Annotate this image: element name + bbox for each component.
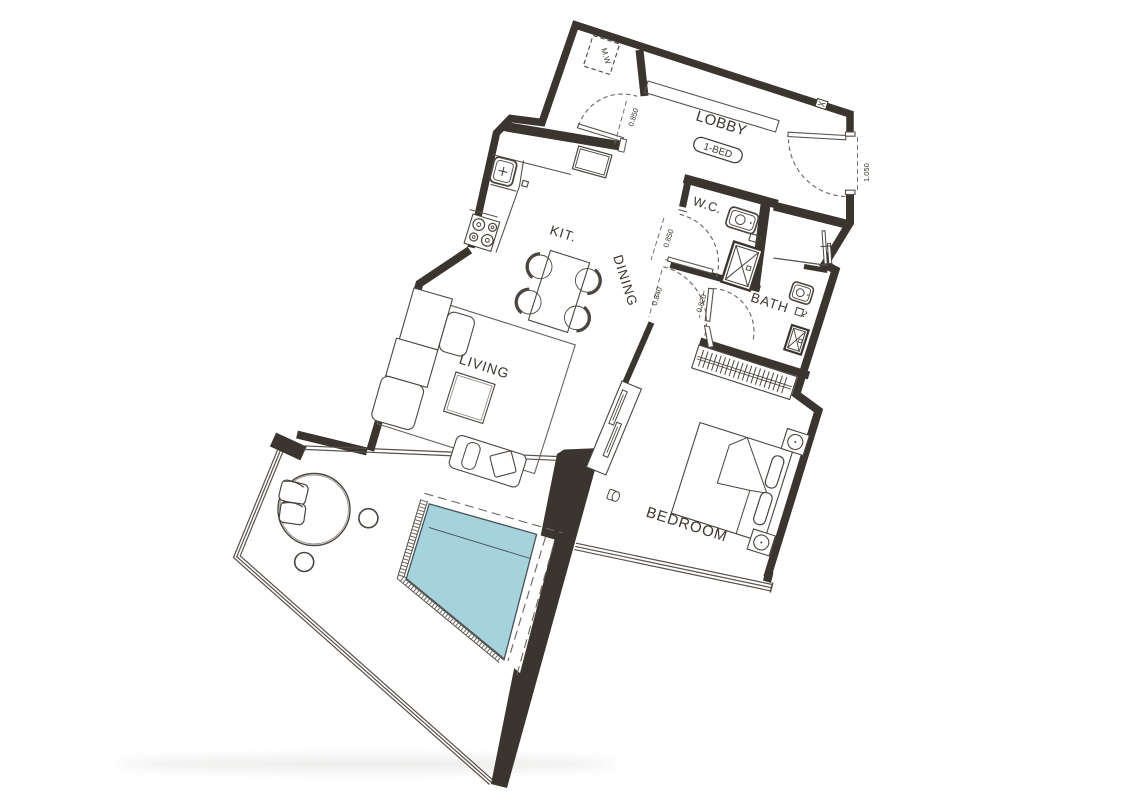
svg-text:1.050: 1.050 xyxy=(862,163,871,182)
